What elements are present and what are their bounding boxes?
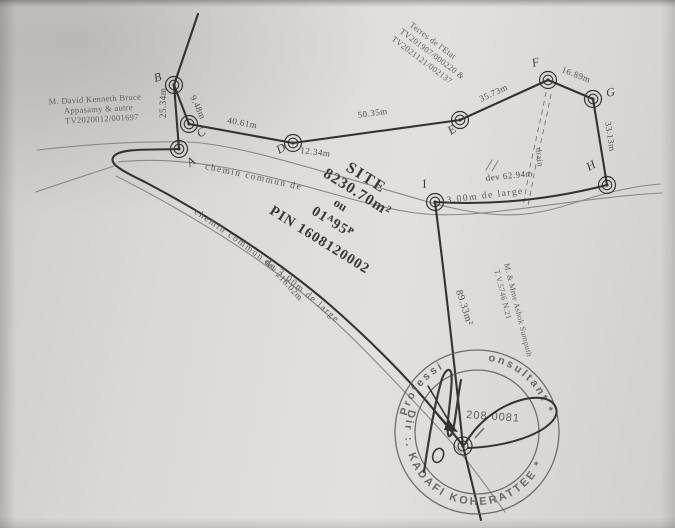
- boundary-i-south: [435, 202, 481, 520]
- tick-marks: [486, 160, 498, 171]
- distance-d-road: 12.34m: [300, 145, 331, 159]
- stamp-inner-ring: [415, 370, 539, 494]
- boundary-d-e: [293, 120, 460, 143]
- scanned-survey-plan: drain A B C D E F G H I: [0, 0, 675, 528]
- point-label-a: A: [183, 153, 198, 170]
- neighbor-block: M. & Mme Ashok Sumputh T.V.5746 N.21: [491, 262, 534, 360]
- distance-ab: 25.34m: [158, 88, 168, 118]
- point-label-g: G: [605, 84, 617, 100]
- road-edges: [36, 142, 662, 512]
- road-label-upper: chemin commun de: [204, 162, 303, 193]
- boundary-b-north: [174, 14, 198, 85]
- owner-left-block: M. David Kenneth Bruce Appasamy & autre …: [48, 92, 142, 127]
- distance-cd: 40.61m: [227, 115, 259, 130]
- surveyor-stamp: Dir :. KADAFI KOHERATTEE * Professi onsu…: [395, 350, 559, 514]
- point-label-f: F: [529, 54, 541, 70]
- distance-gh: 33.13m: [603, 121, 618, 152]
- stamp-outer-ring: [395, 350, 559, 514]
- signature-loop: [433, 448, 444, 462]
- site-block: SITE 8230.70m² ou 01ᴬ95ᴾ PIN 1608120002: [266, 137, 413, 278]
- small-area-label: 89.33m²: [453, 289, 475, 327]
- boundary-g-h: [593, 99, 607, 185]
- drain-lines: drain: [523, 92, 551, 207]
- arrowhead: [444, 419, 458, 432]
- distance-de: 50.35m: [357, 106, 388, 120]
- plan-drawing: drain A B C D E F G H I: [0, 0, 675, 528]
- point-label-i: I: [420, 176, 428, 191]
- distance-bc: 9.48m: [188, 94, 208, 121]
- state-land-block: Terres de l'Etat TV201907/000220 & TV202…: [390, 16, 474, 90]
- distance-fg: 16.89m: [560, 65, 592, 85]
- stamp-number: 208 0081: [466, 409, 521, 425]
- road-spur-left: [36, 166, 114, 192]
- drain-label: drain: [534, 147, 546, 167]
- survey-point-f: [540, 72, 557, 89]
- point-label-h: H: [583, 156, 600, 174]
- stamp-ring-text-top-right: onsultant *: [487, 352, 555, 416]
- point-label-b: B: [152, 69, 163, 85]
- road-label-lower: chemin commun de 3.00m de large: [192, 207, 341, 325]
